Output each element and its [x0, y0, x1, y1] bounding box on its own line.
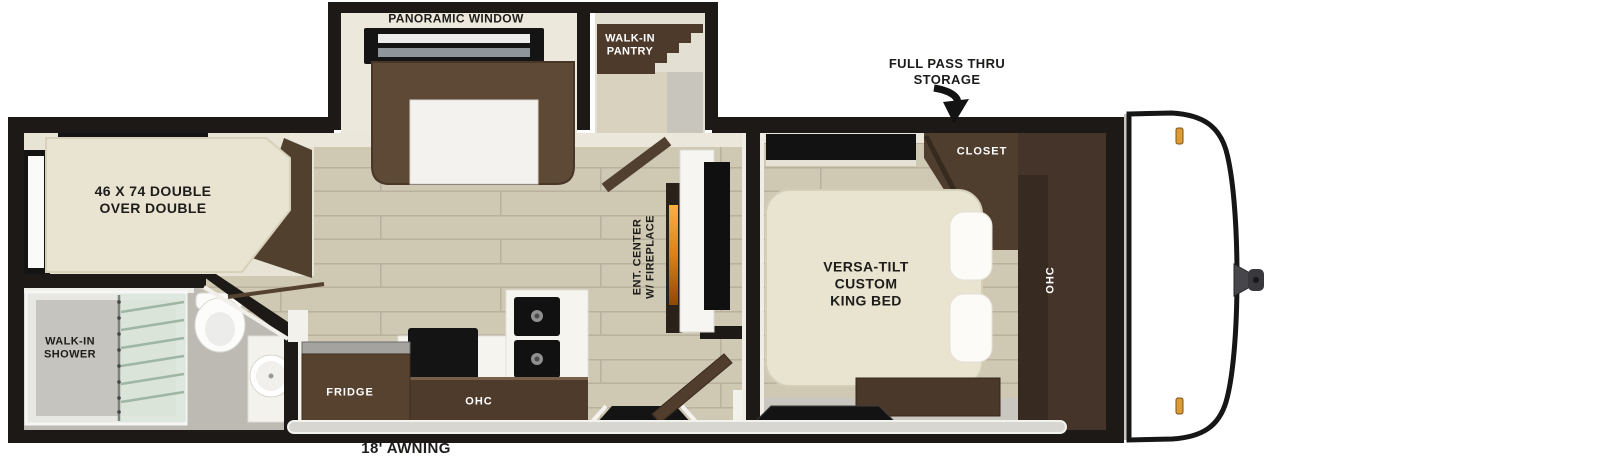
tv-panel	[704, 162, 730, 310]
awning-rail	[288, 421, 1066, 433]
wall-top-front	[712, 117, 1110, 133]
wardrobe-recess	[1018, 175, 1048, 430]
pantry-slide-wall-top	[582, 2, 718, 13]
hitch-pin	[1253, 277, 1259, 283]
sink-drain-top-hole	[535, 314, 540, 319]
marker-light-top	[1176, 128, 1183, 144]
bath-sink-drain	[269, 374, 274, 379]
divider-trim-right	[760, 133, 764, 430]
bath-wall-vertical	[284, 330, 298, 430]
front-cap-body	[1129, 113, 1237, 440]
floorplan-drawing	[0, 0, 1600, 460]
wall-top-rear	[8, 117, 334, 133]
pillow-top	[950, 212, 992, 280]
pantry-slideout	[595, 13, 705, 133]
toilet-bowl-inner	[205, 312, 235, 346]
bedroom-window	[766, 134, 916, 160]
panoramic-window-frame	[364, 28, 544, 64]
front-cap	[1124, 113, 1264, 440]
range-stove	[408, 328, 478, 380]
kitchen-ohc-cabinet	[394, 377, 588, 422]
sofa-slide-wall-top	[328, 2, 590, 13]
bunk-bed	[46, 138, 290, 272]
bedroom-divider-wall	[746, 127, 760, 430]
pantry-slide-wall-right	[705, 2, 718, 130]
sofa-slide-wall-left	[328, 2, 341, 130]
divider-trim-left	[742, 133, 746, 430]
pillow-bottom	[950, 294, 992, 362]
fireplace-flame	[669, 205, 678, 305]
pantry-floor-right	[667, 72, 703, 133]
sink-drain-bottom-hole	[535, 357, 540, 362]
hitch-a-frame	[1234, 264, 1250, 296]
marker-light-bottom	[1176, 398, 1183, 414]
sofa-slideout	[341, 13, 577, 184]
floorplan-canvas: PANORAMIC WINDOW WALK-IN PANTRY FULL PAS…	[0, 0, 1600, 460]
bunk-room	[22, 128, 312, 278]
sofa-slide-wall-right	[577, 2, 590, 130]
fridge-body	[302, 354, 410, 424]
dinette-table	[410, 100, 538, 184]
bath-wall-horizontal	[8, 274, 206, 288]
wall-front	[1106, 117, 1124, 443]
bedroom-window-sill	[766, 160, 916, 166]
panoramic-window-pane-top	[378, 34, 530, 43]
bunk-side-window-glass	[28, 156, 44, 268]
panoramic-window-pane-bottom	[378, 48, 530, 57]
king-bed	[766, 190, 982, 386]
kitchen-ohc-edge	[394, 377, 588, 380]
counter-end-cabinet	[288, 310, 308, 342]
